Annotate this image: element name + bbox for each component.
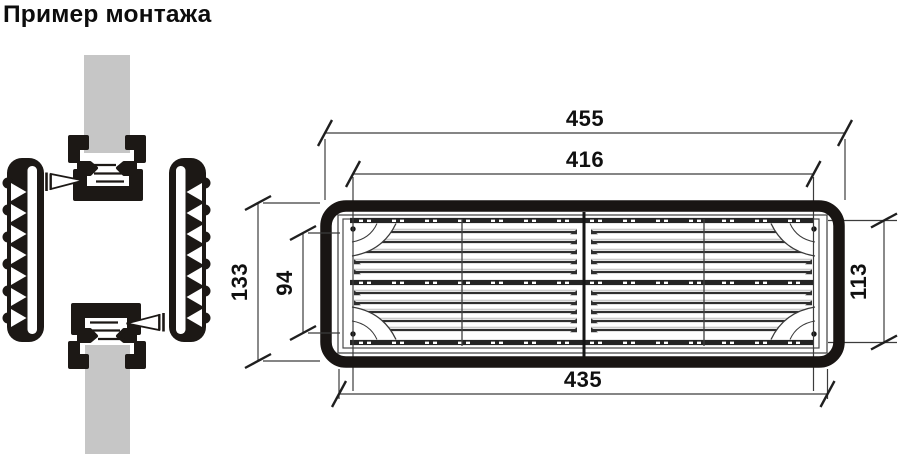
dim-label-inner-width: 416 [566, 147, 604, 172]
dim-label-flange-height: 113 [846, 263, 871, 300]
dim-label-outer-height: 133 [227, 263, 252, 301]
dimension-435: 435 [332, 367, 835, 407]
dimension-113: 113 [846, 214, 897, 350]
installation-example-view [3, 55, 211, 454]
grille-flange-left [3, 158, 45, 342]
grille-flange-right [169, 158, 211, 342]
drawing-sheet: Пример монтажа [0, 0, 900, 454]
dim-label-inner-height: 94 [272, 270, 297, 296]
duct-wall-top [84, 55, 130, 153]
dim-label-outer-width: 455 [566, 106, 604, 131]
dim-label-flange-width: 435 [564, 367, 602, 392]
duct-wall-bottom [85, 345, 130, 454]
grille-front-view [326, 177, 897, 391]
technical-drawing: 455 416 435 133 [0, 0, 900, 454]
dimension-416: 416 [346, 147, 821, 187]
